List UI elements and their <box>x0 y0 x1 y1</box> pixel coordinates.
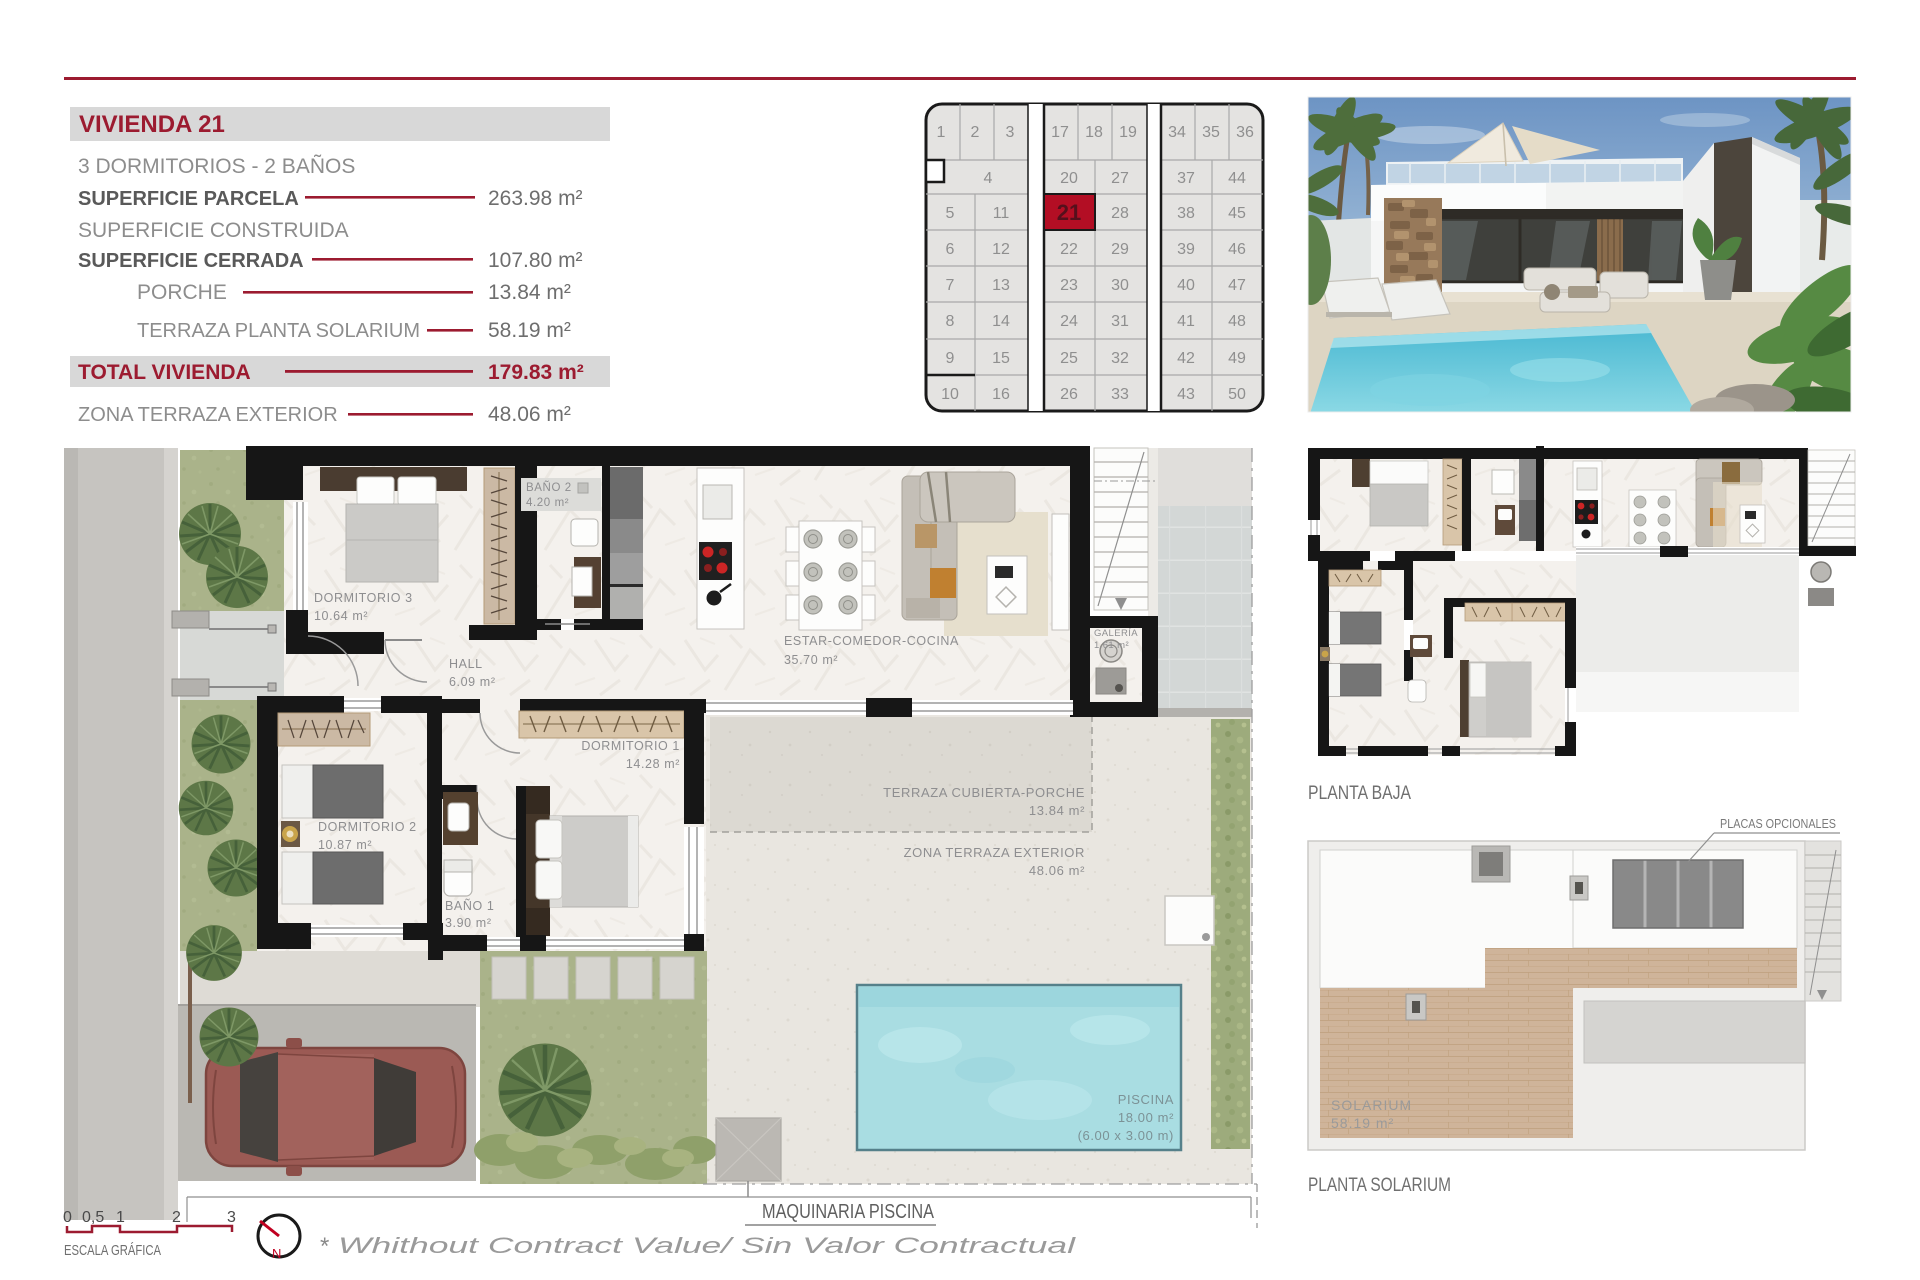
svg-text:10: 10 <box>941 386 959 403</box>
svg-text:BAÑO 1: BAÑO 1 <box>445 899 494 913</box>
svg-text:30: 30 <box>1111 277 1129 294</box>
svg-text:SUPERFICIE PARCELA: SUPERFICIE PARCELA <box>78 188 299 210</box>
svg-text:38: 38 <box>1177 205 1195 222</box>
svg-text:42: 42 <box>1177 350 1195 367</box>
svg-text:18: 18 <box>1085 124 1103 141</box>
svg-text:MAQUINARIA PISCINA: MAQUINARIA PISCINA <box>762 1201 935 1223</box>
svg-text:14: 14 <box>992 313 1010 330</box>
svg-text:41: 41 <box>1177 313 1195 330</box>
svg-text:PISCINA: PISCINA <box>1118 1092 1174 1107</box>
svg-text:15: 15 <box>992 350 1010 367</box>
svg-text:1: 1 <box>116 1209 125 1226</box>
svg-text:29: 29 <box>1111 241 1129 258</box>
svg-text:ESCALA GRÁFICA: ESCALA GRÁFICA <box>64 1242 161 1259</box>
svg-text:44: 44 <box>1228 170 1246 187</box>
svg-text:26: 26 <box>1060 386 1078 403</box>
svg-text:28: 28 <box>1111 205 1129 222</box>
svg-text:11: 11 <box>993 205 1010 222</box>
svg-text:ZONA TERRAZA EXTERIOR: ZONA TERRAZA EXTERIOR <box>904 845 1085 860</box>
svg-text:107.80 m²: 107.80 m² <box>488 249 583 272</box>
svg-text:1: 1 <box>937 124 946 141</box>
svg-text:37: 37 <box>1177 170 1195 187</box>
svg-text:N: N <box>272 1246 281 1261</box>
svg-text:ZONA TERRAZA EXTERIOR: ZONA TERRAZA EXTERIOR <box>78 404 338 426</box>
svg-text:35: 35 <box>1202 124 1220 141</box>
svg-text:PLACAS OPCIONALES: PLACAS OPCIONALES <box>1720 816 1836 831</box>
svg-text:8: 8 <box>946 313 955 330</box>
svg-text:179.83 m²: 179.83 m² <box>488 361 584 384</box>
svg-text:18.00 m²: 18.00 m² <box>1118 1110 1174 1125</box>
svg-text:BAÑO 2: BAÑO 2 <box>526 481 572 494</box>
svg-text:43: 43 <box>1177 386 1195 403</box>
svg-text:10.64 m²: 10.64 m² <box>314 609 368 623</box>
svg-text:13.84 m²: 13.84 m² <box>1029 803 1085 818</box>
svg-text:VIVIENDA 21: VIVIENDA 21 <box>79 111 225 138</box>
svg-text:7: 7 <box>946 277 955 294</box>
svg-text:3.90 m²: 3.90 m² <box>445 916 492 930</box>
svg-text:35.70 m²: 35.70 m² <box>784 653 838 667</box>
svg-text:GALERÍA: GALERÍA <box>1094 628 1138 639</box>
svg-text:17: 17 <box>1051 124 1069 141</box>
svg-text:47: 47 <box>1228 277 1246 294</box>
svg-text:58.19 m²: 58.19 m² <box>1331 1115 1394 1131</box>
svg-text:25: 25 <box>1060 350 1078 367</box>
svg-text:27: 27 <box>1111 170 1129 187</box>
svg-text:TERRAZA PLANTA SOLARIUM: TERRAZA PLANTA SOLARIUM <box>137 320 420 342</box>
svg-text:DORMITORIO 2: DORMITORIO 2 <box>318 820 417 834</box>
svg-text:48.06 m²: 48.06 m² <box>1029 863 1085 878</box>
svg-text:9: 9 <box>946 350 955 367</box>
svg-text:48.06 m²: 48.06 m² <box>488 403 571 426</box>
svg-text:31: 31 <box>1111 313 1129 330</box>
svg-text:0: 0 <box>63 1209 72 1226</box>
svg-text:16: 16 <box>992 386 1010 403</box>
svg-text:3: 3 <box>1006 124 1015 141</box>
svg-text:14.28 m²: 14.28 m² <box>626 757 680 771</box>
svg-text:PLANTA SOLARIUM: PLANTA SOLARIUM <box>1308 1175 1451 1196</box>
svg-text:0,5: 0,5 <box>82 1209 104 1226</box>
svg-text:4.20 m²: 4.20 m² <box>526 497 569 509</box>
svg-text:263.98 m²: 263.98 m² <box>488 187 583 210</box>
svg-text:13.84 m²: 13.84 m² <box>488 281 571 304</box>
svg-text:5: 5 <box>946 205 955 222</box>
svg-text:3 DORMITORIOS - 2 BAÑOS: 3 DORMITORIOS - 2 BAÑOS <box>78 154 355 178</box>
svg-text:12: 12 <box>992 241 1010 258</box>
svg-text:ESTAR-COMEDOR-COCINA: ESTAR-COMEDOR-COCINA <box>784 634 959 648</box>
svg-text:58.19 m²: 58.19 m² <box>488 319 571 342</box>
svg-text:39: 39 <box>1177 241 1195 258</box>
svg-text:46: 46 <box>1228 241 1246 258</box>
svg-text:50: 50 <box>1228 386 1246 403</box>
svg-text:19: 19 <box>1119 124 1137 141</box>
svg-text:34: 34 <box>1168 124 1186 141</box>
svg-text:36: 36 <box>1236 124 1254 141</box>
svg-text:23: 23 <box>1060 277 1078 294</box>
svg-text:TERRAZA CUBIERTA-PORCHE: TERRAZA CUBIERTA-PORCHE <box>883 785 1085 800</box>
svg-text:PORCHE: PORCHE <box>137 281 227 304</box>
svg-text:SUPERFICIE CONSTRUIDA: SUPERFICIE CONSTRUIDA <box>78 219 349 242</box>
svg-text:TOTAL VIVIENDA: TOTAL VIVIENDA <box>78 361 251 384</box>
svg-text:1.61 m²: 1.61 m² <box>1094 640 1129 651</box>
svg-text:SUPERFICIE CERRADA: SUPERFICIE CERRADA <box>78 250 304 272</box>
svg-text:2: 2 <box>971 124 980 141</box>
svg-text:*: * <box>320 1233 329 1260</box>
svg-text:HALL: HALL <box>449 657 483 671</box>
svg-text:Whithout Contract Value/ Sin V: Whithout Contract Value/ Sin Valor Contr… <box>338 1233 1077 1258</box>
svg-text:32: 32 <box>1111 350 1129 367</box>
svg-text:45: 45 <box>1228 205 1246 222</box>
svg-text:4: 4 <box>984 170 993 187</box>
svg-text:2: 2 <box>172 1209 181 1226</box>
svg-text:PLANTA BAJA: PLANTA BAJA <box>1308 783 1411 804</box>
svg-text:48: 48 <box>1228 313 1246 330</box>
svg-text:20: 20 <box>1060 170 1078 187</box>
svg-text:SOLARIUM: SOLARIUM <box>1331 1097 1412 1113</box>
svg-text:24: 24 <box>1060 313 1078 330</box>
svg-text:6.09 m²: 6.09 m² <box>449 675 496 689</box>
svg-text:10.87 m²: 10.87 m² <box>318 838 372 852</box>
svg-text:33: 33 <box>1111 386 1129 403</box>
svg-text:13: 13 <box>992 277 1010 294</box>
svg-text:DORMITORIO 1: DORMITORIO 1 <box>581 739 680 753</box>
svg-text:40: 40 <box>1177 277 1195 294</box>
svg-text:DORMITORIO 3: DORMITORIO 3 <box>314 591 413 605</box>
svg-text:22: 22 <box>1060 241 1078 258</box>
svg-text:(6.00 x 3.00 m): (6.00 x 3.00 m) <box>1078 1128 1174 1143</box>
svg-text:21: 21 <box>1057 200 1081 225</box>
svg-text:3: 3 <box>227 1209 236 1226</box>
svg-text:49: 49 <box>1228 350 1246 367</box>
svg-text:6: 6 <box>946 241 955 258</box>
